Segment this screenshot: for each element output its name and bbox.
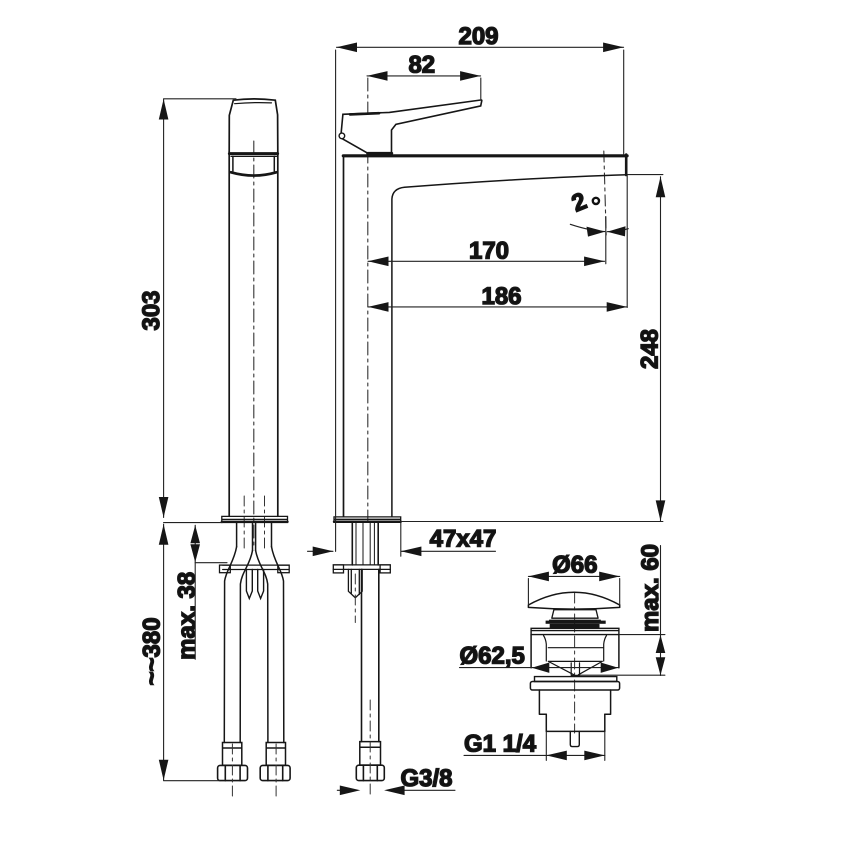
svg-text:303: 303: [138, 290, 165, 330]
svg-text:G1 1/4: G1 1/4: [464, 730, 537, 757]
svg-text:47x47: 47x47: [430, 525, 497, 552]
svg-text:248: 248: [636, 329, 663, 369]
svg-text:170: 170: [469, 238, 509, 265]
svg-text:Ø66: Ø66: [552, 552, 597, 579]
svg-text:82: 82: [408, 51, 435, 78]
svg-text:186: 186: [481, 283, 521, 310]
svg-text:209: 209: [458, 23, 498, 50]
svg-text:max. 60: max. 60: [637, 544, 664, 632]
svg-text:~~380: ~~380: [138, 617, 165, 685]
svg-text:G3/8: G3/8: [401, 765, 453, 792]
svg-text:max. 38: max. 38: [173, 572, 200, 660]
svg-text:Ø62,5: Ø62,5: [460, 642, 525, 669]
